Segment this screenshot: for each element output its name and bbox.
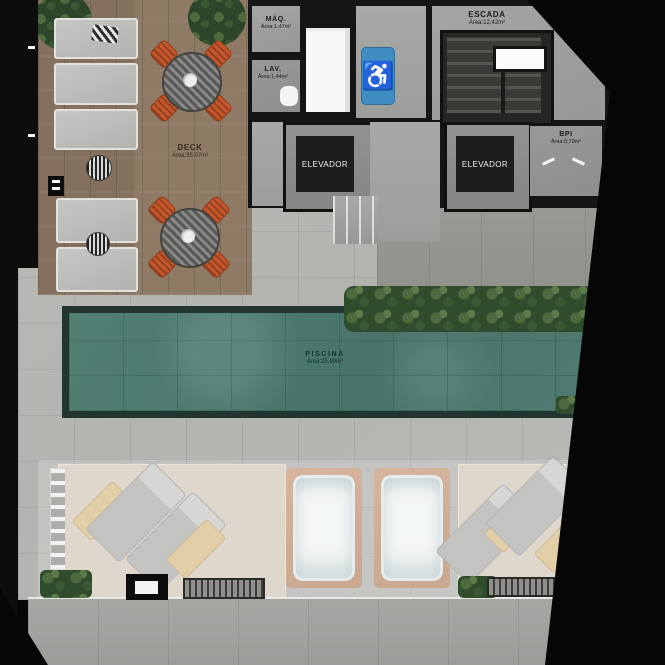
table-centerpiece <box>183 73 197 87</box>
pool-area-text: Área:25,99m² <box>270 359 380 366</box>
door-mark <box>28 46 35 49</box>
toilet <box>280 86 298 106</box>
wheelchair-icon: ♿ <box>361 60 395 92</box>
drain-grate-left <box>183 578 265 599</box>
dining-set-lower <box>150 198 226 274</box>
wall-box-detail <box>52 187 60 190</box>
stairs-area-text: Área:12,42m² <box>432 20 542 27</box>
elevator-right-label: ELEVADOR <box>462 160 508 169</box>
elevator-lobby-left <box>252 122 283 206</box>
open-shaft <box>306 28 350 112</box>
accessibility-sign: ♿ <box>362 48 394 104</box>
deck-name: DECK <box>148 143 232 153</box>
top-left-wall <box>0 0 38 268</box>
bpi-label: BPI Área:0,79m² <box>530 131 602 146</box>
deck-area-text: Área:35,07m² <box>148 153 232 160</box>
pergola-trellis-left <box>50 468 66 570</box>
side-table-round-upper <box>86 155 112 181</box>
lav-label: LAV. Área:1,44m² <box>250 66 296 81</box>
floor-sign-panel <box>135 581 158 594</box>
sofa-cushion <box>54 109 138 150</box>
stairs-name: ESCADA <box>432 10 542 20</box>
lav-area-text: Área:1,44m² <box>250 74 296 81</box>
stair-landing <box>493 46 547 72</box>
elevator-right: ELEVADOR <box>444 122 532 212</box>
deck-label: DECK Área:35,07m² <box>148 143 232 160</box>
elevator-left-cab: ELEVADOR <box>296 136 354 192</box>
maq-label: MÁQ. Área:1,47m² <box>250 16 302 31</box>
elevator-left-label: ELEVADOR <box>302 160 348 169</box>
shrub-bottom-left <box>40 570 92 598</box>
drain-grate-right <box>487 577 559 597</box>
stairwell <box>440 30 554 126</box>
dining-set-upper <box>152 42 228 118</box>
floor-plan-canvas: DECK Área:35,07m² <box>0 0 665 665</box>
side-table-round-lower <box>86 232 110 256</box>
table-centerpiece <box>181 229 195 243</box>
elevator-corridor <box>370 122 440 242</box>
floor-sign <box>126 574 168 600</box>
bpi-area-text: Área:0,79m² <box>530 139 602 146</box>
bottom-sidewalk <box>28 597 593 665</box>
terrace-steps <box>333 196 379 244</box>
stair-divider <box>501 71 505 113</box>
pool-label: PISCINA Área:25,99m² <box>270 351 380 367</box>
elevator-right-cab: ELEVADOR <box>456 136 514 192</box>
wall-box-detail <box>52 180 60 183</box>
hedge-planter <box>344 286 602 332</box>
door-mark <box>28 134 35 137</box>
sofa-pillow <box>91 24 119 43</box>
stairs-label: ESCADA Área:12,42m² <box>432 10 542 27</box>
sofa-cushion <box>54 63 138 104</box>
wall-mounted-box <box>48 176 64 196</box>
maq-area-text: Área:1,47m² <box>250 24 302 31</box>
